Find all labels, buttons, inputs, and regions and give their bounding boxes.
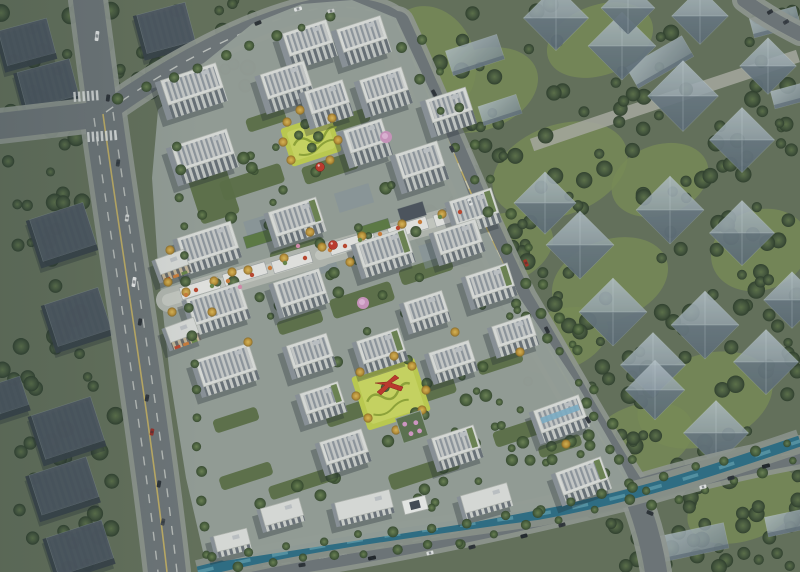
layer-tint xyxy=(0,0,800,572)
aerial-render xyxy=(0,0,800,572)
scene-svg xyxy=(0,0,800,572)
